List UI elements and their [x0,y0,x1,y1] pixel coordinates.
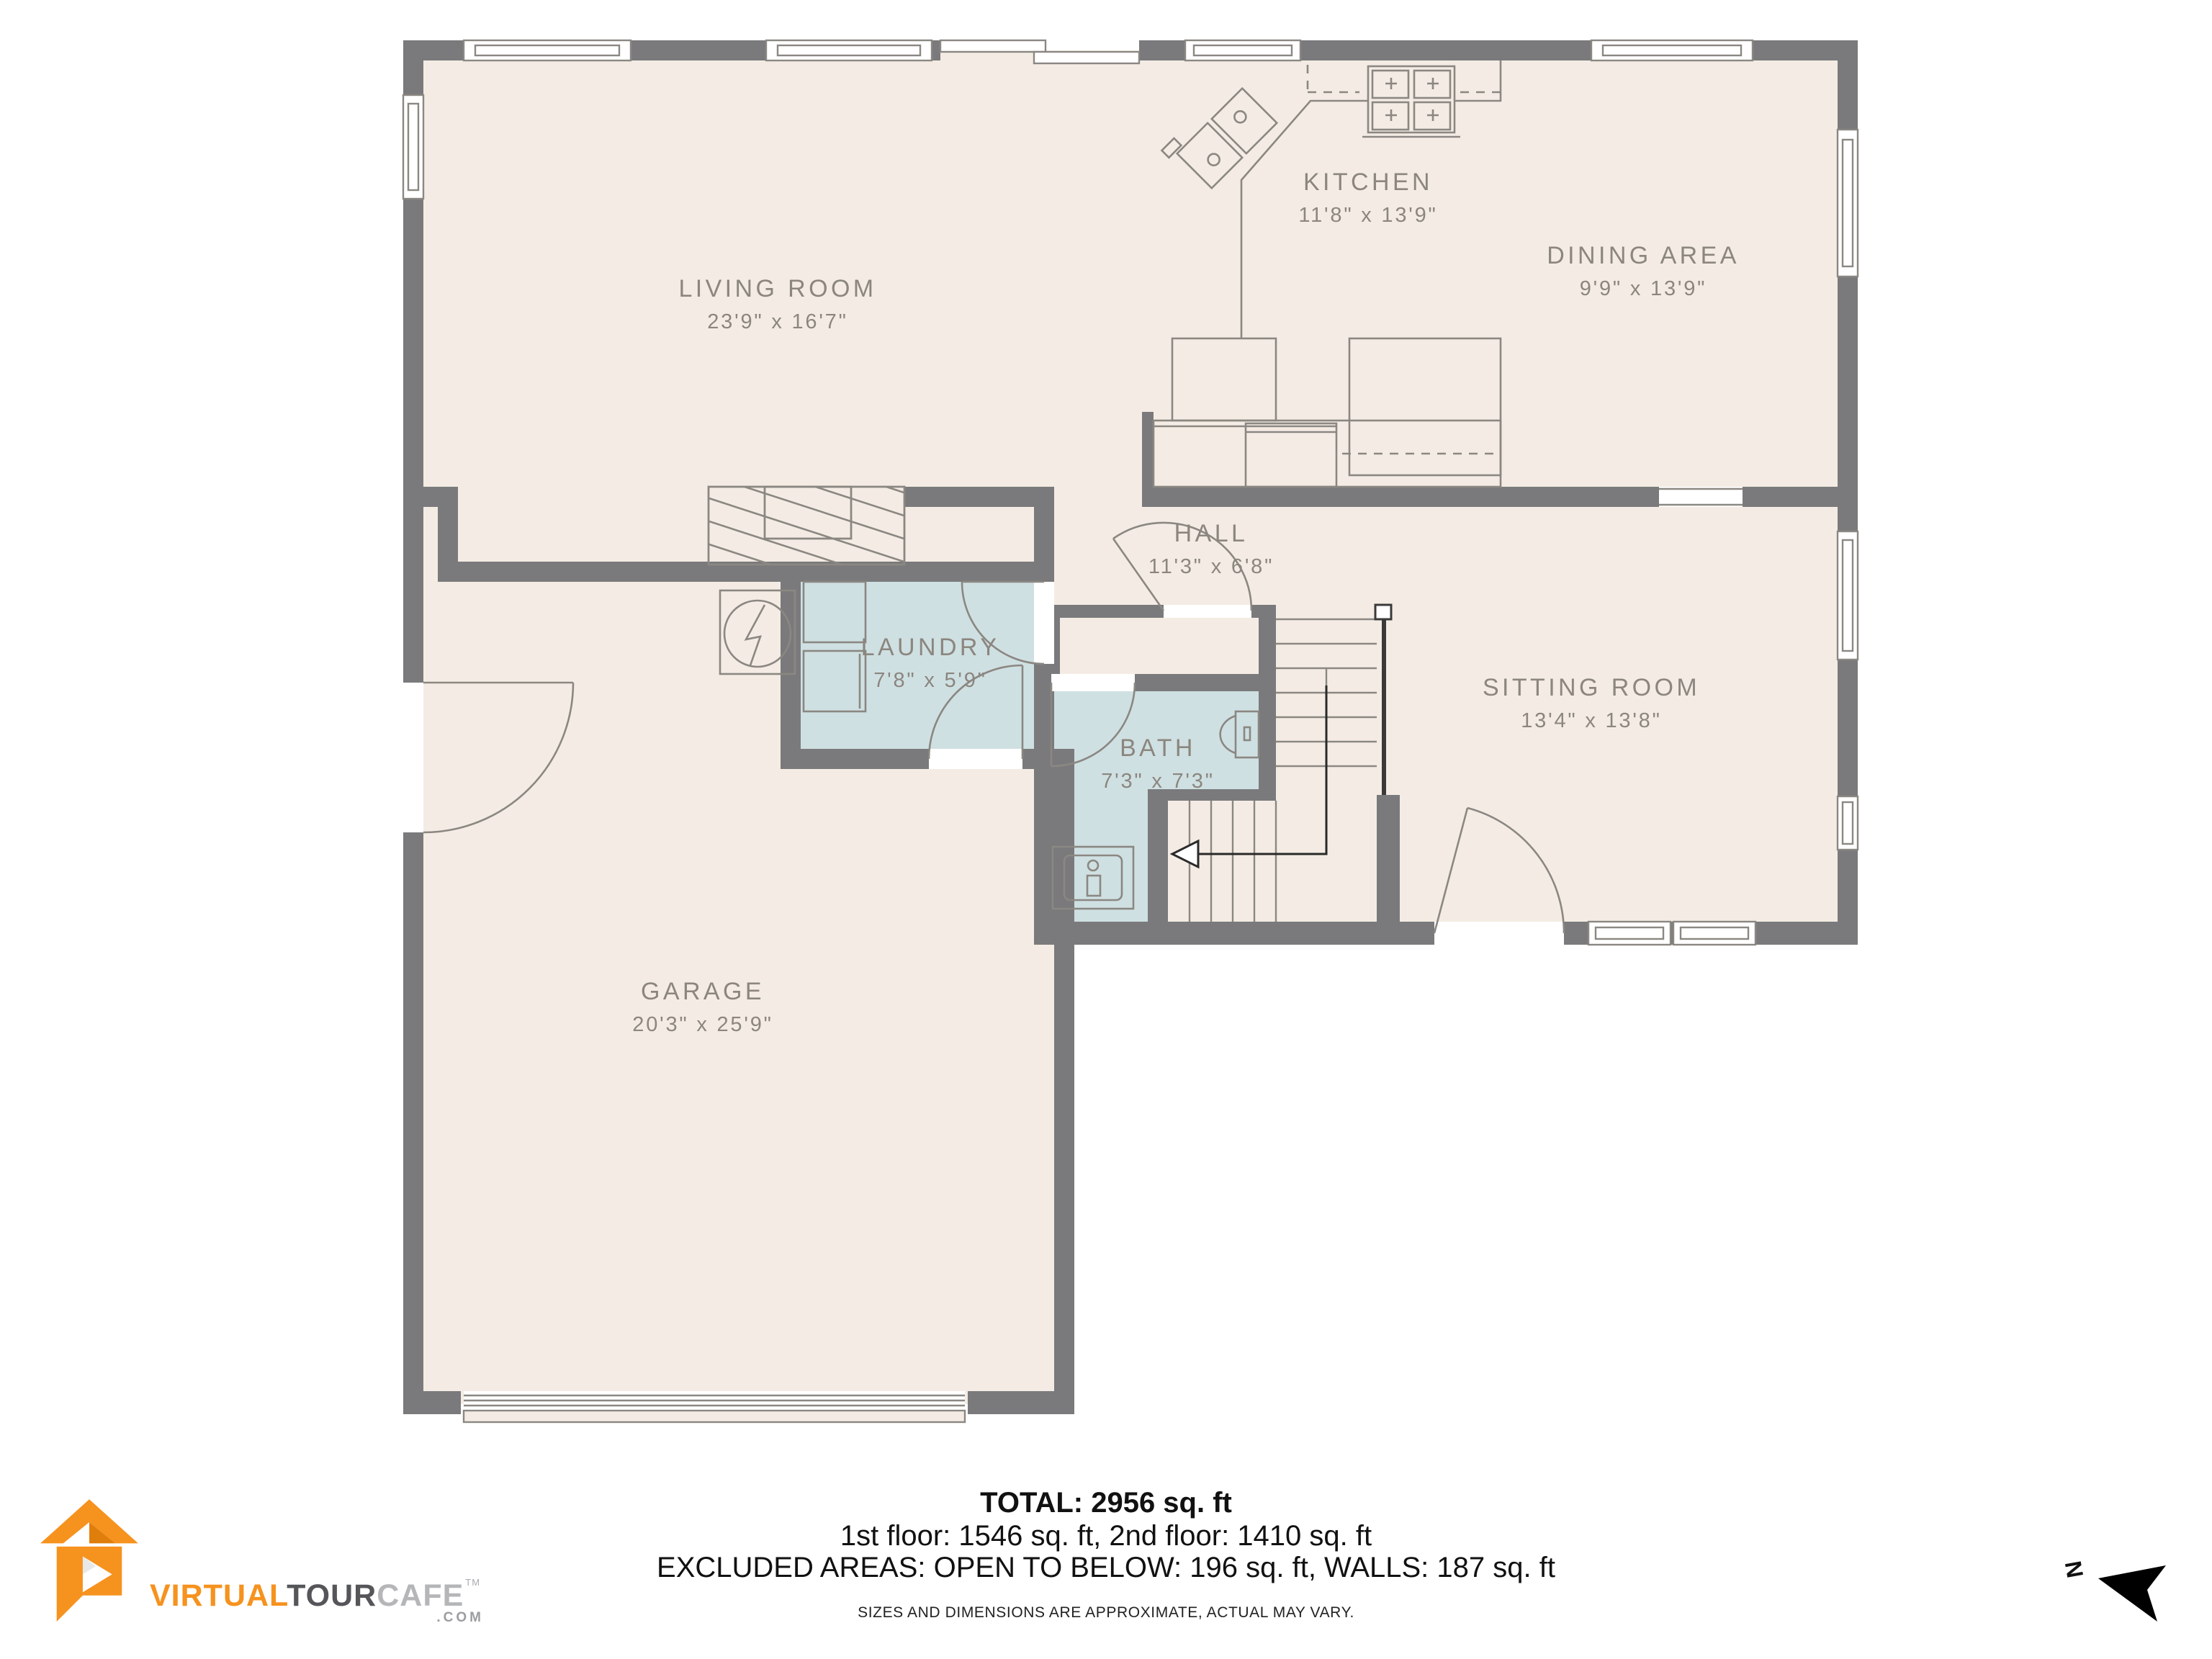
north-arrow-icon [2098,1565,2166,1622]
room-label-sitting-room: SITTING ROOM 13'4" x 13'8" [1483,673,1700,739]
logo-house-icon [40,1498,138,1622]
window [766,40,932,60]
logo-tour: TOUR [287,1578,377,1613]
room-label-kitchen: KITCHEN 11'8" x 13'9" [1298,167,1437,233]
virtualtourcafe-logo: VIRTUALTOURCAFETM .COM [40,1498,501,1627]
window [1838,531,1858,660]
window [1588,922,1671,945]
north-arrow: N [2052,1544,2196,1636]
logo-tm: TM [465,1578,480,1588]
room-label-hall: HALL 11'3" x 6'8" [1148,518,1274,585]
logo-com: .COM [150,1610,484,1626]
floorplan-drawing [0,0,2212,1455]
logo-cafe: CAFE [377,1578,464,1613]
window [1838,796,1858,850]
window [1673,922,1755,945]
room-label-dining-area: DINING AREA 9'9" x 13'9" [1547,240,1740,307]
room-label-laundry: LAUNDRY 7'8" x 5'9" [861,632,1000,698]
room-label-bath: BATH 7'3" x 7'3" [1101,733,1215,799]
window [1185,40,1300,60]
north-label: N [2060,1559,2088,1580]
room-label-living-room: LIVING ROOM 23'9" x 16'7" [678,274,876,340]
garage-door [464,1391,965,1422]
logo-virtual: VIRTUAL [150,1578,287,1613]
window [403,95,423,199]
room-label-garage: GARAGE 20'3" x 25'9" [632,976,773,1043]
window [464,40,631,60]
floorplan-stage: LIVING ROOM 23'9" x 16'7" KITCHEN 11'8" … [0,0,2212,1659]
window [1591,40,1753,60]
stove [1362,66,1460,137]
window [1838,130,1858,276]
floorplan-page: LIVING ROOM 23'9" x 16'7" KITCHEN 11'8" … [0,0,2212,1659]
